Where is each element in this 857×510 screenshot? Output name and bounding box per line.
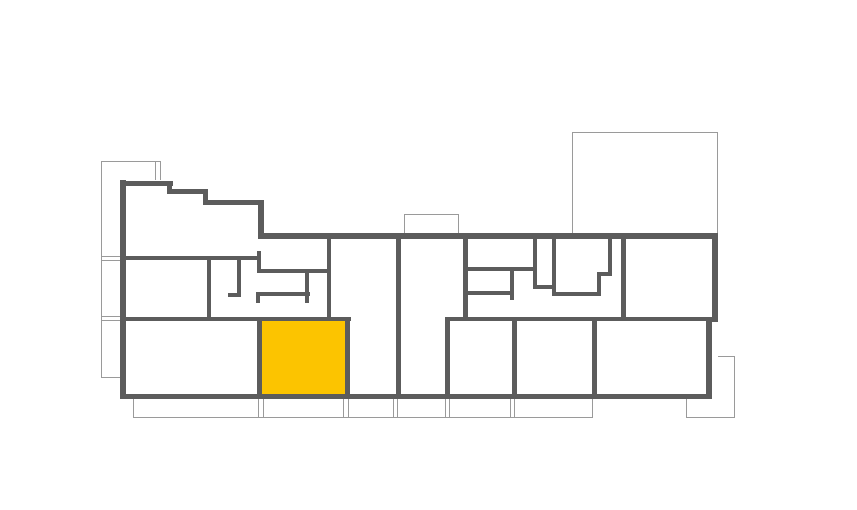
balcony-outline-line [133, 417, 592, 418]
balcony-outline-line [510, 398, 511, 418]
balcony-outline-line [101, 161, 160, 162]
balcony-outline-line [514, 398, 515, 418]
balcony-outline-line [101, 316, 120, 317]
balcony-outline-line [155, 161, 156, 182]
interior-wall-segment [463, 267, 536, 271]
balcony-outline-line [160, 161, 161, 182]
balcony-outline-line [592, 398, 593, 418]
balcony-outline-line [449, 398, 450, 418]
balcony-outline-line [101, 377, 120, 378]
balcony-outline-line [101, 260, 120, 261]
exterior-wall-segment [712, 233, 718, 320]
interior-wall-segment [510, 267, 514, 300]
exterior-wall-segment [120, 180, 126, 399]
interior-wall-segment [445, 317, 712, 321]
interior-wall-segment [207, 258, 211, 320]
balcony-outline-line [101, 256, 120, 257]
interior-wall-segment [228, 293, 241, 297]
interior-wall-segment [621, 236, 626, 321]
balcony-outline-line [734, 356, 735, 418]
exterior-wall-segment [120, 181, 173, 186]
interior-wall-segment [257, 317, 262, 399]
interior-wall-segment [512, 317, 517, 399]
interior-wall-segment [533, 236, 537, 288]
interior-wall-segment [608, 236, 612, 276]
interior-wall-segment [396, 236, 401, 399]
interior-wall-segment [256, 292, 260, 303]
interior-wall-segment [237, 258, 241, 297]
interior-wall-segment [463, 236, 468, 321]
interior-wall-segment [552, 236, 556, 294]
interior-wall-segment [123, 317, 351, 321]
balcony-outline-line [686, 417, 734, 418]
building-footprint-fill [120, 180, 266, 399]
interior-wall-segment [463, 291, 510, 295]
balcony-outline-line [445, 398, 446, 418]
balcony-outline-line [397, 398, 398, 418]
balcony-outline-line [572, 132, 573, 236]
interior-wall-segment [445, 317, 450, 399]
balcony-outline-line [717, 132, 718, 236]
exterior-wall-segment [203, 200, 264, 205]
balcony-outline-line [572, 132, 718, 133]
exterior-wall-segment [120, 394, 712, 399]
balcony-outline-line [404, 214, 459, 215]
balcony-outline-line [263, 398, 264, 418]
balcony-outline-line [393, 398, 394, 418]
exterior-wall-segment [706, 318, 712, 399]
balcony-outline-line [343, 398, 344, 418]
interior-wall-segment [256, 292, 310, 296]
interior-wall-segment [345, 317, 350, 399]
interior-wall-segment [592, 317, 597, 399]
balcony-outline-line [101, 161, 102, 378]
interior-wall-segment [305, 271, 309, 303]
exterior-wall-segment [167, 189, 208, 194]
selected-unit-highlight[interactable] [262, 321, 346, 394]
interior-wall-segment [552, 292, 601, 296]
interior-wall-segment [327, 236, 331, 321]
balcony-outline-line [258, 398, 259, 418]
balcony-outline-line [348, 398, 349, 418]
floor-plan [0, 0, 857, 510]
interior-wall-segment [258, 269, 331, 273]
balcony-outline-line [133, 398, 134, 418]
balcony-outline-line [101, 320, 120, 321]
